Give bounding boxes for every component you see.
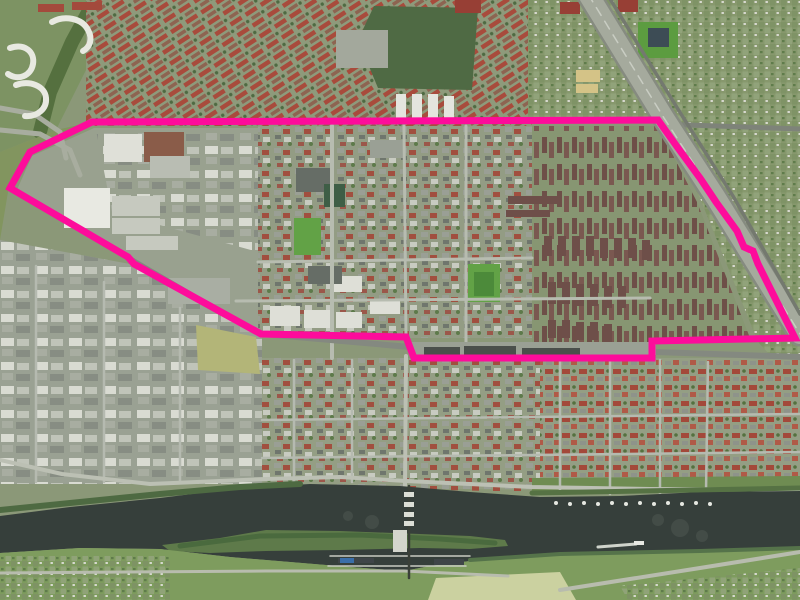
barge-containers [340,558,354,563]
aerial-map-canvas[interactable] [0,0,800,600]
allotments-southwest [0,556,170,600]
south-urban-texture-west [262,358,540,492]
south-urban-texture-east [540,358,800,492]
barge-dark [434,559,464,565]
sports-pitch-east [474,272,494,296]
bigbox-store [150,156,190,178]
commercial-north-block [336,30,388,68]
sports-pitch-northeast [648,28,669,47]
road-vertical-2 [404,126,406,337]
tennis-courts [324,184,345,207]
sand-courts [576,70,600,93]
lock-tower [393,530,407,552]
motorboat [634,541,644,545]
sports-field-central [294,218,321,255]
aerial-map-viewport[interactable] [0,0,800,600]
road-lock-access [405,356,406,487]
car-dealership-lot [370,140,404,158]
retail-store-white [104,134,142,162]
